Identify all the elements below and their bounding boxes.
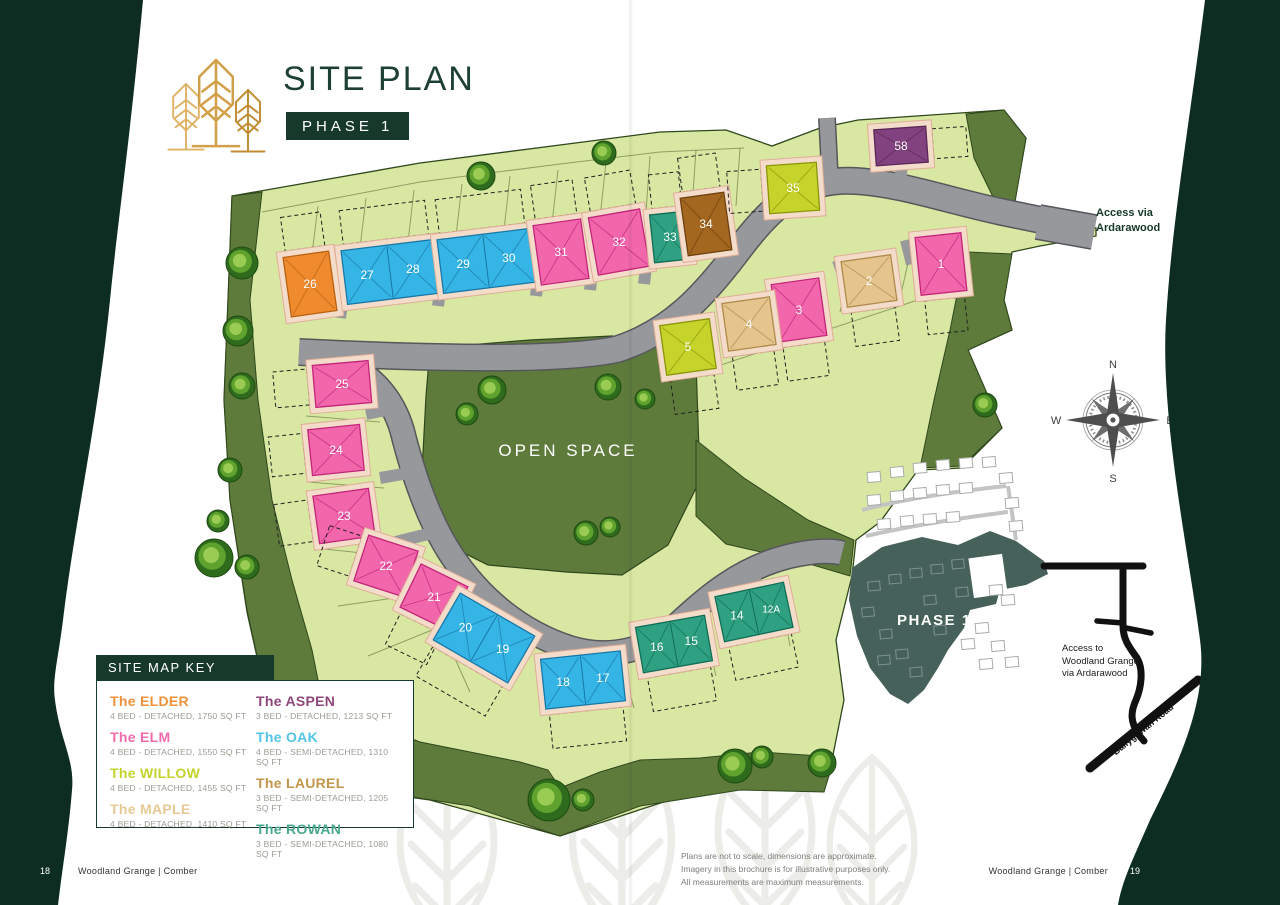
disclaimer-line-2: Imagery in this brochure is for illustra… [681,863,890,876]
key-entry: The WILLOW4 BED - DETACHED, 1455 SQ FT [110,765,256,793]
disclaimer: Plans are not to scale, dimensions are a… [681,850,890,889]
plot-number-32: 32 [612,235,626,249]
tree [600,517,620,537]
key-house-name: The ELDER [110,693,256,709]
tree [207,510,229,532]
tree [223,316,253,346]
plot-number-3: 3 [796,303,803,317]
page-title: SITE PLAN [283,60,475,99]
site-map-key-header: SITE MAP KEY [96,655,274,680]
inset-house [877,518,891,529]
plot-number-19: 19 [496,642,510,656]
inset-house [867,494,881,505]
tree [751,746,773,768]
plot-number-34: 34 [699,217,713,231]
key-house-spec: 4 BED - DETACHED, 1455 SQ FT [110,783,256,793]
compass-w: W [1051,415,1062,427]
compass-rose: N E S W [1051,359,1174,485]
inset-phase-label: PHASE 1 [897,612,972,629]
tree [467,162,495,190]
inset-house [1009,520,1023,531]
tree [478,376,506,404]
key-entry: The OAK4 BED - SEMI-DETACHED, 1310 SQ FT [256,729,402,767]
brochure-spread: 2627282930313233343558123452524232221201… [0,0,1280,905]
key-house-spec: 4 BED - SEMI-DETACHED, 1310 SQ FT [256,747,402,767]
plot-number-23: 23 [337,509,351,523]
disclaimer-line-1: Plans are not to scale, dimensions are a… [681,850,890,863]
inset-access-line-2: Woodland Grange [1062,656,1139,669]
tree [574,521,598,545]
inset-house [936,484,950,495]
key-house-spec: 3 BED - SEMI-DETACHED, 1080 SQ FT [256,839,402,859]
key-house-spec: 3 BED - SEMI-DETACHED, 1205 SQ FT [256,793,402,813]
inset-house [890,490,904,501]
inset-house [979,658,993,669]
footer-left-text: Woodland Grange | Comber [78,866,197,876]
inset-house [959,482,973,493]
tree [218,458,242,482]
key-house-spec: 3 BED - DETACHED, 1213 SQ FT [256,711,402,721]
tree [229,373,255,399]
inset-house [890,466,904,477]
inset-house [1001,594,1015,605]
plot-number-30: 30 [502,251,516,265]
key-entry: The ELM4 BED - DETACHED, 1550 SQ FT [110,729,256,757]
inset-house [959,457,973,468]
plot-number-35: 35 [786,181,800,195]
access-line-2: Ardarawood [1096,221,1160,236]
tree [595,374,621,400]
key-house-name: The OAK [256,729,402,745]
inset-house [923,513,937,524]
inset-house [991,640,1005,651]
key-house-spec: 4 BED - DETACHED, 1550 SQ FT [110,747,256,757]
key-house-name: The MAPLE [110,801,256,817]
open-space-label: OPEN SPACE [488,441,648,461]
inset-house [936,459,950,470]
plot-number-15: 15 [685,634,699,648]
inset-house [982,456,996,467]
inset-access-line-3: via Ardarawood [1062,668,1139,681]
key-house-name: The WILLOW [110,765,256,781]
inset-house [913,487,927,498]
tree [195,539,233,577]
key-column-2: The ASPEN3 BED - DETACHED, 1213 SQ FTThe… [256,693,402,867]
plot-number-16: 16 [650,640,664,654]
plot-number-58: 58 [894,139,908,153]
plot-number-20: 20 [459,620,473,634]
right-page-edge [1118,0,1280,905]
key-entry: The ASPEN3 BED - DETACHED, 1213 SQ FT [256,693,402,721]
driveway [380,472,414,478]
plot-number-29: 29 [456,257,470,271]
inset-house [913,462,927,473]
plot-number-33: 33 [663,230,677,244]
tree [528,779,570,821]
tree [635,389,655,409]
compass-n: N [1109,359,1117,371]
key-house-spec: 4 BED - DETACHED, 1410 SQ FT [110,819,256,829]
phase-badge: PHASE 1 [286,112,409,140]
plot-number-18: 18 [556,675,570,689]
plot-number-5: 5 [685,340,692,354]
key-entry: The LAUREL3 BED - SEMI-DETACHED, 1205 SQ… [256,775,402,813]
woodland-grange-logo [168,60,264,152]
plot-number-22: 22 [379,559,393,573]
inset-house [999,472,1013,483]
plot-number-24: 24 [329,443,343,457]
plot-number-21: 21 [427,590,441,604]
tree [718,749,752,783]
plot-number-27: 27 [360,268,374,282]
key-column-1: The ELDER4 BED - DETACHED, 1750 SQ FTThe… [110,693,256,867]
key-house-name: The ROWAN [256,821,402,837]
inset-house [989,584,1003,595]
inset-house [1005,656,1019,667]
key-entry: The MAPLE4 BED - DETACHED, 1410 SQ FT [110,801,256,829]
key-house-name: The ASPEN [256,693,402,709]
key-entry: The ELDER4 BED - DETACHED, 1750 SQ FT [110,693,256,721]
tree [226,247,258,279]
inset-house [867,471,881,482]
tree [592,141,616,165]
inset-house [900,515,914,526]
tree [808,749,836,777]
tree [456,403,478,425]
plot-number-26: 26 [303,277,317,291]
inset-access-label: Access to Woodland Grange via Ardarawood [1062,643,1139,681]
tree [973,393,997,417]
site-map-key: The ELDER4 BED - DETACHED, 1750 SQ FTThe… [96,680,414,828]
plot-number-14: 14 [730,609,744,623]
plot-number-17: 17 [596,671,610,685]
key-house-name: The ELM [110,729,256,745]
inset-house [946,511,960,522]
plot-number-4: 4 [746,317,753,331]
tree [572,789,594,811]
plot-number-28: 28 [406,262,420,276]
plot-number-25: 25 [335,377,349,391]
page-number-left: 18 [40,866,50,876]
key-entry: The ROWAN3 BED - SEMI-DETACHED, 1080 SQ … [256,821,402,859]
key-house-spec: 4 BED - DETACHED, 1750 SQ FT [110,711,256,721]
disclaimer-line-3: All measurements are maximum measurement… [681,876,890,889]
inset-house [975,622,989,633]
inset-house [961,638,975,649]
access-line-1: Access via [1096,206,1160,221]
tree [235,555,259,579]
page-number-right: 19 [1130,866,1140,876]
plot-number-2: 2 [866,274,873,288]
inset-access-line-1: Access to [1062,643,1139,656]
key-house-name: The LAUREL [256,775,402,791]
plot-number-1: 1 [938,257,945,271]
plot-number-12A: 12A [762,604,780,615]
inset-house [1005,497,1019,508]
access-via-ardarawood-label: Access via Ardarawood [1096,206,1160,236]
plot-number-31: 31 [554,245,568,259]
compass-s: S [1109,473,1116,485]
footer-right-text: Woodland Grange | Comber [968,866,1108,876]
